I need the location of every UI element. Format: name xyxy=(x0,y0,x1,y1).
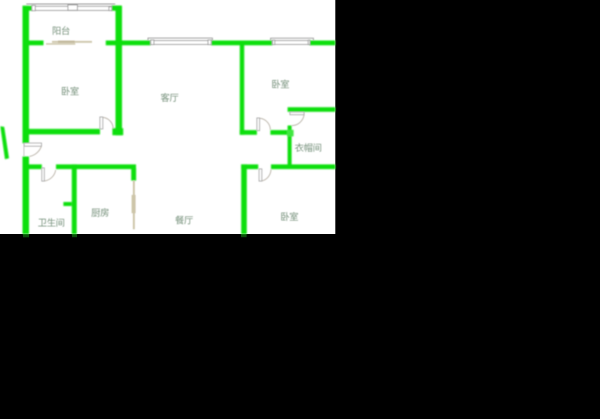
svg-text:卧室: 卧室 xyxy=(61,86,79,97)
svg-text:阳台: 阳台 xyxy=(52,25,70,36)
svg-text:卫生间: 卫生间 xyxy=(38,217,65,228)
svg-text:餐厅: 餐厅 xyxy=(175,214,193,225)
svg-text:厨房: 厨房 xyxy=(91,207,109,218)
svg-text:客厅: 客厅 xyxy=(161,92,179,103)
svg-text:卧室: 卧室 xyxy=(271,78,289,89)
svg-text:衣帽间: 衣帽间 xyxy=(295,142,322,153)
svg-text:卧室: 卧室 xyxy=(280,211,298,222)
